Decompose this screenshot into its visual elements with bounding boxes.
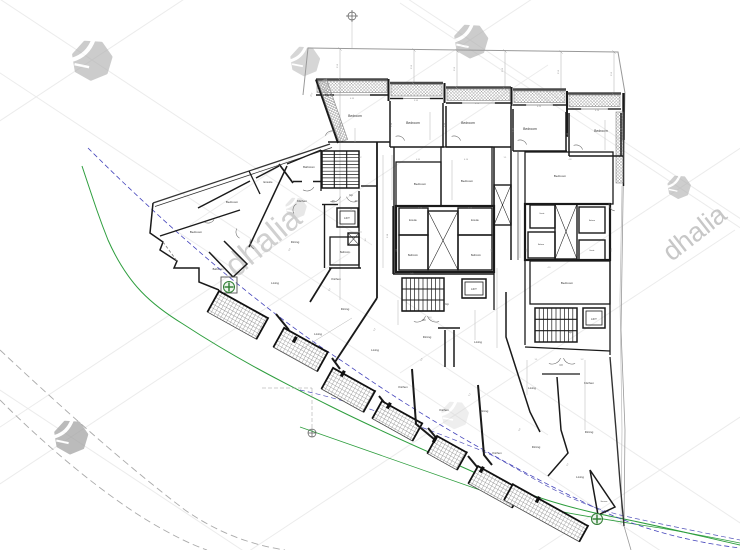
svg-text:Bedroom: Bedroom <box>406 121 420 125</box>
svg-text:Bedroom: Bedroom <box>461 121 475 125</box>
svg-text:Dining: Dining <box>341 307 350 311</box>
svg-text:Living: Living <box>528 386 536 390</box>
svg-text:Kitchen: Kitchen <box>584 381 594 385</box>
svg-text:Dining: Dining <box>423 335 432 339</box>
svg-text:Bedroom: Bedroom <box>594 129 608 133</box>
svg-text:Kitchen: Kitchen <box>492 451 502 455</box>
svg-text:Bedroom: Bedroom <box>348 114 362 118</box>
svg-text:Bathroom: Bathroom <box>408 254 418 257</box>
svg-text:Living: Living <box>371 348 379 352</box>
svg-text:Dining: Dining <box>480 409 489 413</box>
svg-text:Kitchen: Kitchen <box>331 277 341 281</box>
svg-text:Bedroom: Bedroom <box>226 200 239 204</box>
svg-text:Bedroom: Bedroom <box>414 182 427 186</box>
svg-text:LIFT: LIFT <box>591 317 597 321</box>
svg-text:Bedroom: Bedroom <box>561 281 574 285</box>
svg-text:Ensuite: Ensuite <box>409 219 417 222</box>
svg-text:Up: Up <box>445 302 449 306</box>
svg-text:Bedroom: Bedroom <box>461 179 474 183</box>
svg-text:Living: Living <box>314 332 322 336</box>
svg-text:Kitchen: Kitchen <box>297 199 307 203</box>
svg-text:Dining: Dining <box>532 445 541 449</box>
svg-text:Bathroom: Bathroom <box>213 268 224 271</box>
svg-text:Ensuite: Ensuite <box>264 180 273 184</box>
svg-text:Living: Living <box>576 475 584 479</box>
svg-text:Kitchen: Kitchen <box>439 408 449 412</box>
svg-text:Living: Living <box>474 340 482 344</box>
svg-text:Bedroom: Bedroom <box>190 230 203 234</box>
svg-text:Up: Up <box>568 330 572 334</box>
svg-text:LIFT: LIFT <box>344 216 350 220</box>
svg-text:Bathroom: Bathroom <box>303 165 315 169</box>
svg-text:Up: Up <box>349 193 353 197</box>
svg-text:Bathroom: Bathroom <box>340 251 350 254</box>
svg-text:Bedroom: Bedroom <box>523 127 537 131</box>
svg-text:Dining: Dining <box>291 240 300 244</box>
svg-text:LIFT: LIFT <box>471 287 477 291</box>
svg-text:Kitchen: Kitchen <box>398 385 408 389</box>
svg-text:Living: Living <box>271 281 279 285</box>
svg-text:Bathroom: Bathroom <box>471 254 481 257</box>
svg-text:Ensuite: Ensuite <box>471 219 479 222</box>
svg-text:Bedroom: Bedroom <box>554 174 567 178</box>
svg-text:Dining: Dining <box>585 430 594 434</box>
